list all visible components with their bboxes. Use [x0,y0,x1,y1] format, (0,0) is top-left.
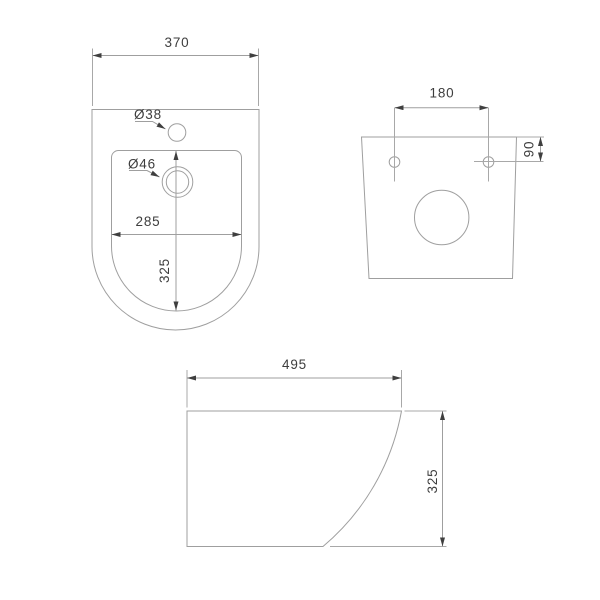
dim-90-label: 90 [522,141,537,158]
dim-495-label: 495 [282,357,307,372]
dim-drain-hole-label: Ø46 [128,157,156,172]
back-view-outline [362,137,517,279]
dim-285-label: 285 [136,214,161,229]
drain-hole-inner [166,171,188,193]
bidet-technical-drawing: 370 Ø38 Ø46 285 325 [0,0,600,600]
dim-180-label: 180 [430,86,455,101]
top-view: 370 Ø38 Ø46 285 325 [92,35,259,330]
dim-325-side-label: 325 [425,469,440,494]
waste-outlet-circle [415,190,469,244]
dim-325-top-label: 325 [157,258,172,283]
dim-tap-hole-leader [135,122,166,130]
side-view-outline [187,411,402,547]
side-view: 495 325 [187,357,447,547]
tap-hole [168,124,186,142]
dim-370-label: 370 [165,35,190,50]
dim-tap-hole-label: Ø38 [134,107,162,122]
back-view: 180 90 [362,86,545,279]
drawing-page: 370 Ø38 Ø46 285 325 [0,0,600,600]
